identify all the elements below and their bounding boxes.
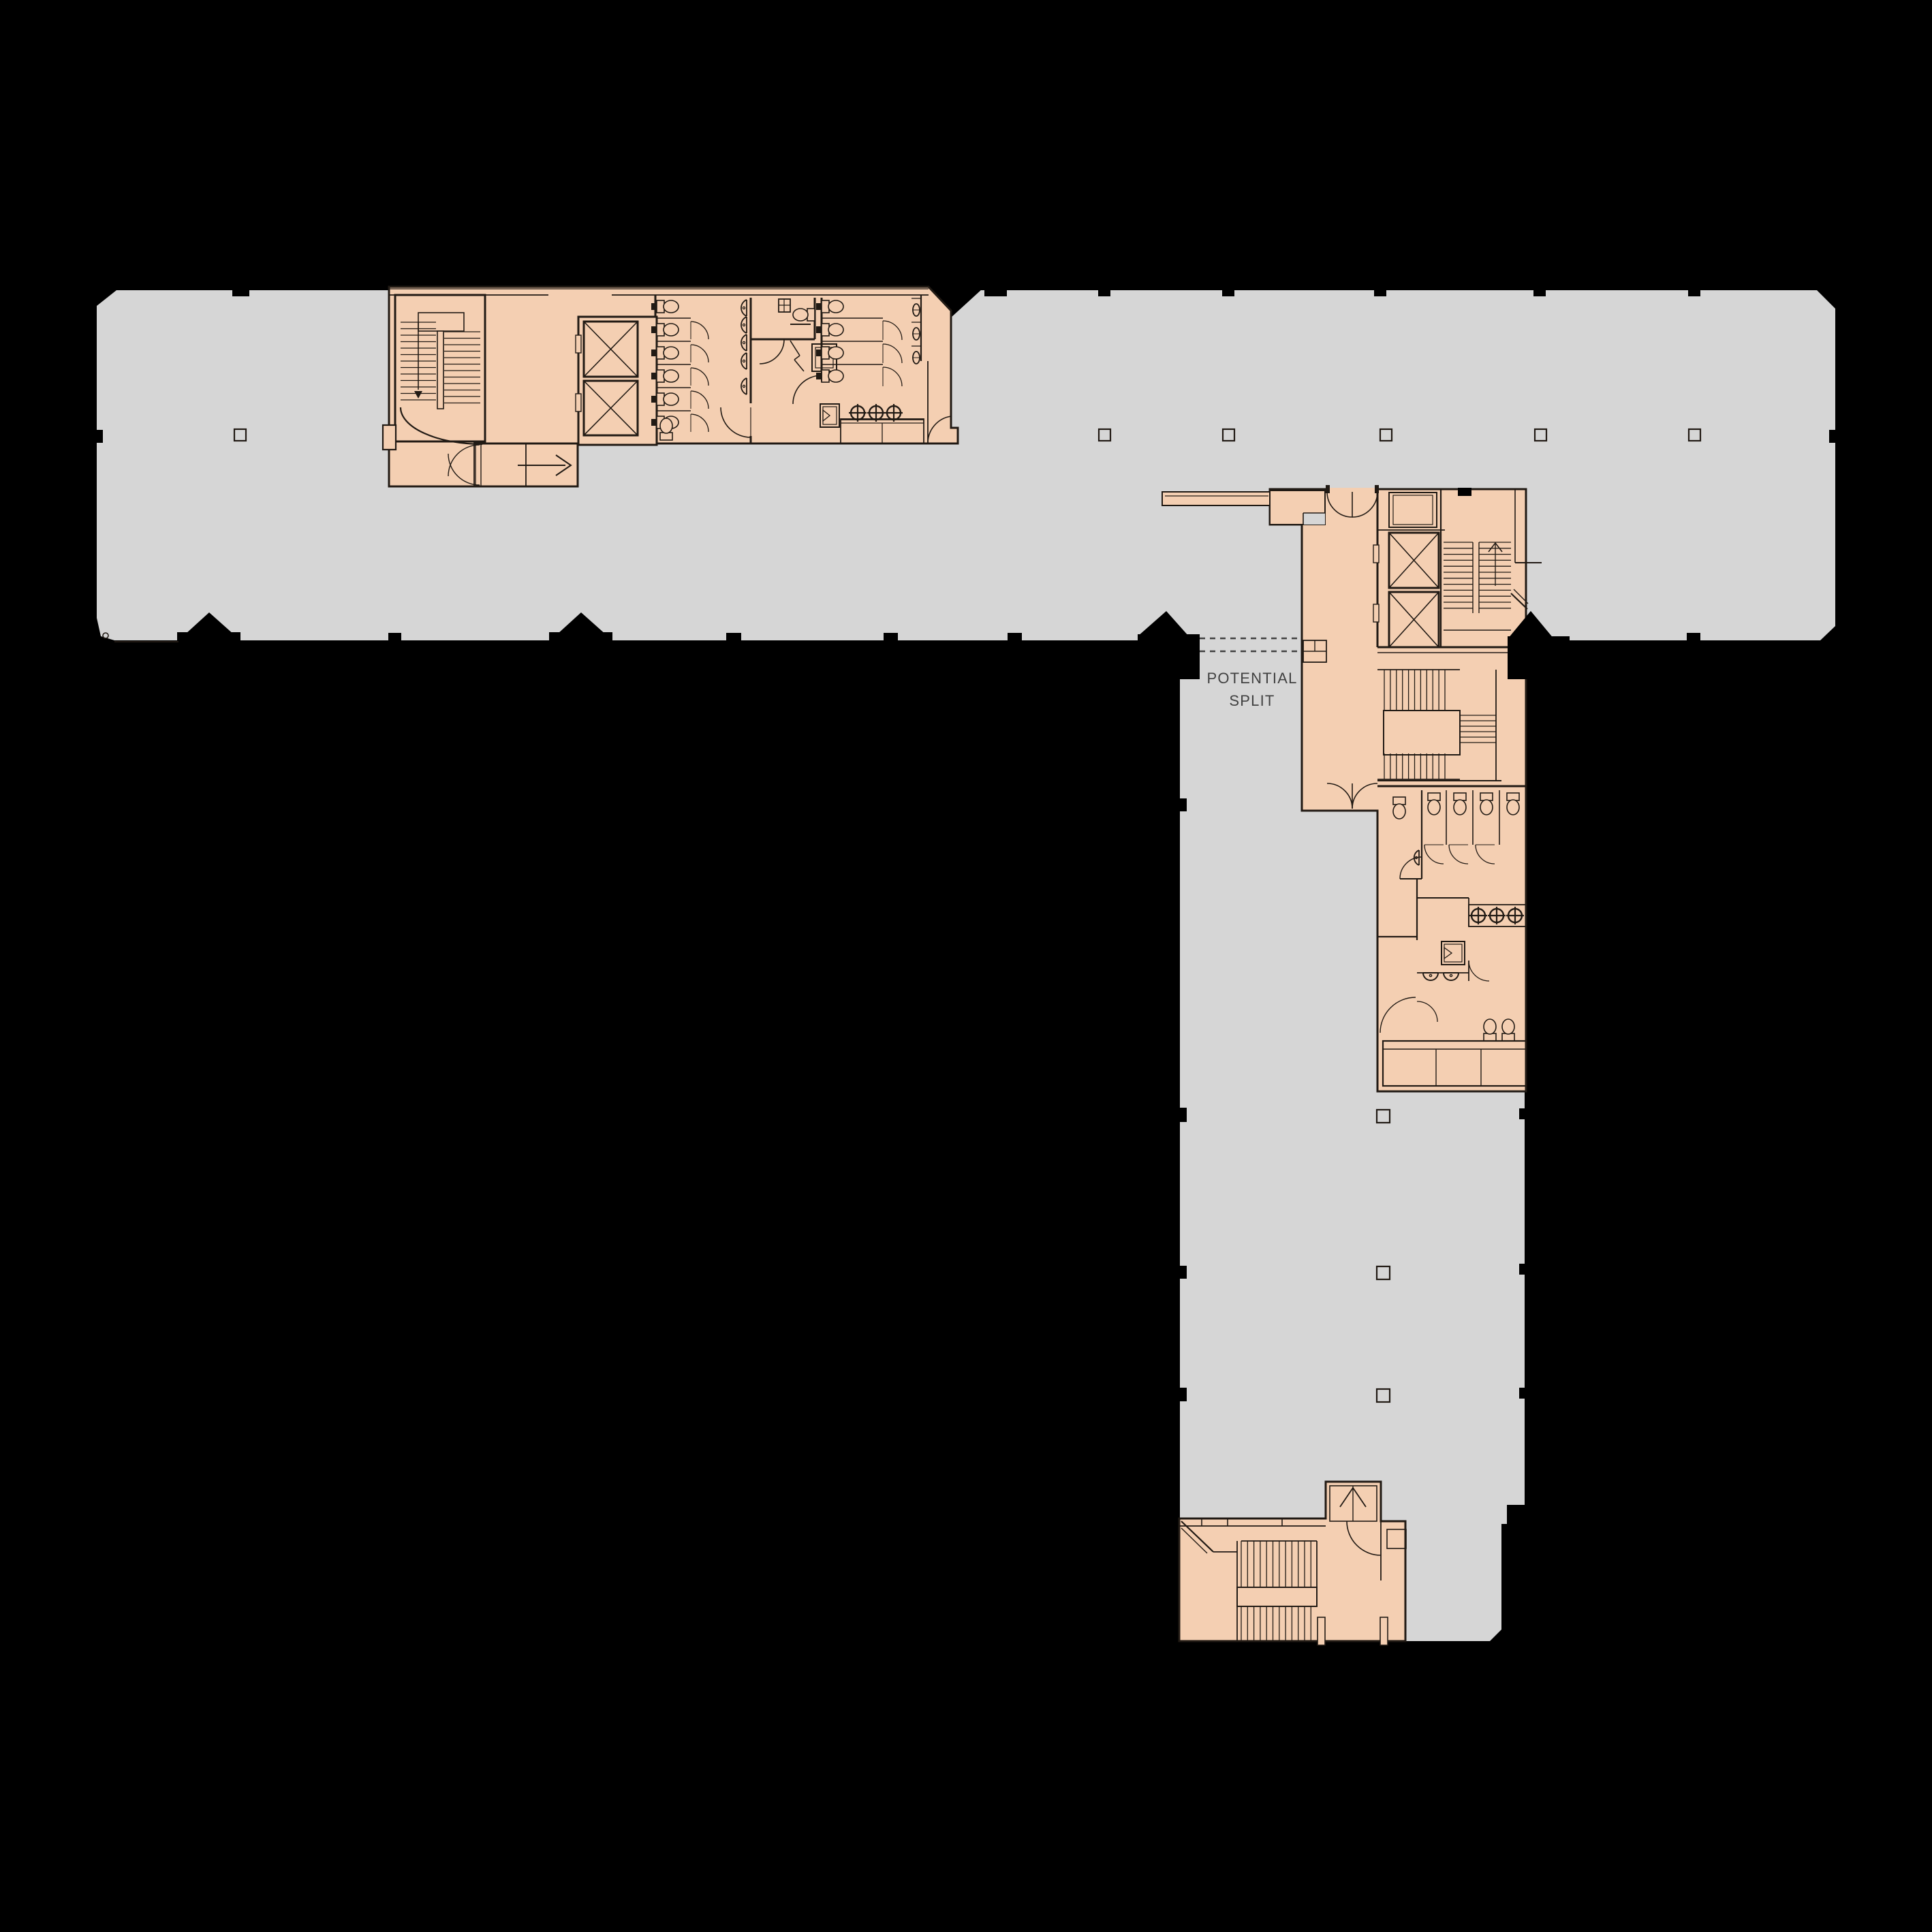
svg-text:SPLIT: SPLIT <box>1229 692 1275 709</box>
svg-text:POTENTIAL: POTENTIAL <box>1206 670 1297 687</box>
